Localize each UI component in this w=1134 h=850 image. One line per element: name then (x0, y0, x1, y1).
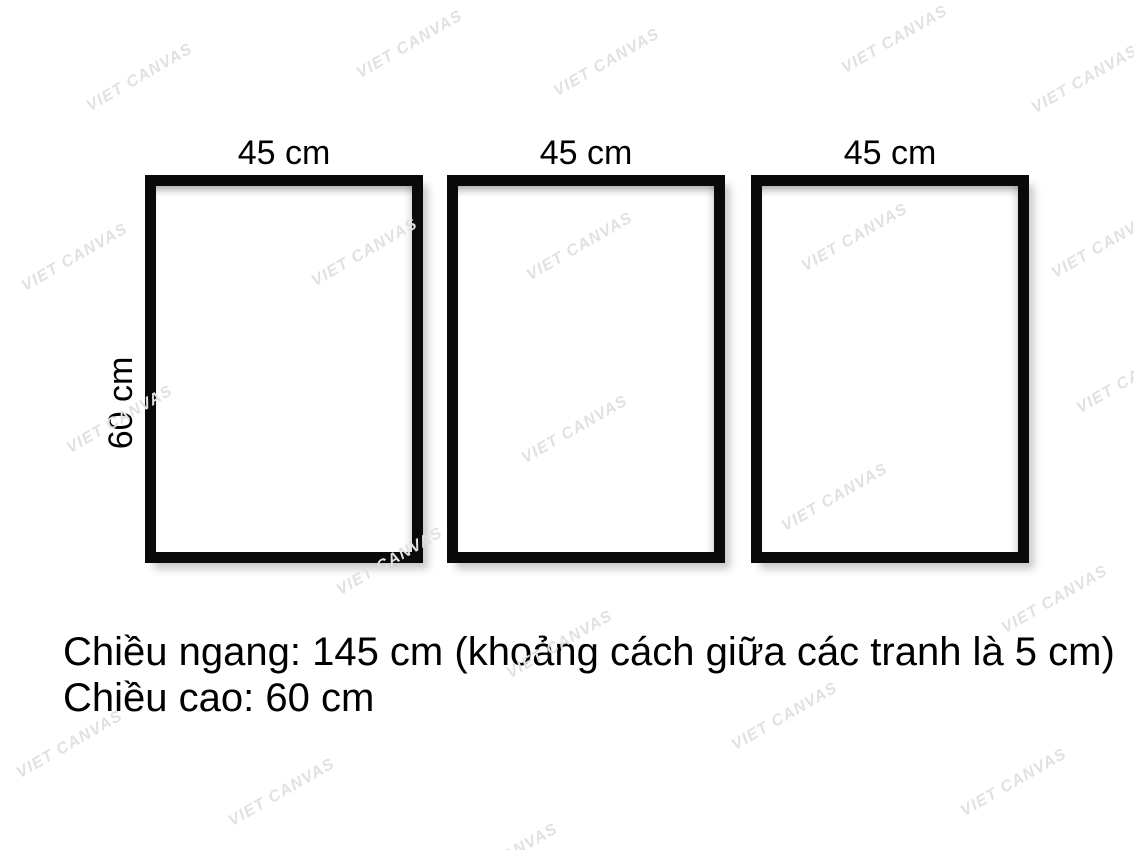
watermark-text: VIET CANVAS (449, 820, 562, 850)
watermark-text: VIET CANVAS (354, 7, 467, 82)
watermark-text: VIET CANVAS (226, 755, 339, 830)
frame-right (751, 175, 1029, 563)
watermark-text: VIET CANVAS (958, 745, 1071, 820)
frame-middle (447, 175, 725, 563)
width-label-middle: 45 cm (447, 133, 725, 173)
watermark-text: VIET CANVAS (999, 562, 1112, 637)
caption-line-vertical: Chiều cao: 60 cm (63, 675, 1115, 721)
watermark-text: VIET CANVAS (839, 2, 952, 77)
width-label-left: 45 cm (145, 133, 423, 173)
watermark-text: VIET CANVAS (551, 25, 664, 100)
dimension-diagram: 45 cm 45 cm 45 cm 60 cm Chiều ngang: 145… (0, 0, 1134, 850)
width-label-right: 45 cm (751, 133, 1029, 173)
watermark-text: VIET CANVAS (1074, 342, 1134, 417)
watermark-text: VIET CANVAS (84, 40, 197, 115)
caption: Chiều ngang: 145 cm (khoảng cách giữa cá… (63, 629, 1115, 721)
caption-line-horizontal: Chiều ngang: 145 cm (khoảng cách giữa cá… (63, 629, 1115, 675)
watermark-text: VIET CANVAS (1049, 207, 1134, 282)
height-label: 60 cm (104, 357, 138, 450)
watermark-text: VIET CANVAS (1029, 42, 1134, 117)
frame-left (145, 175, 423, 563)
watermark-text: VIET CANVAS (19, 220, 132, 295)
